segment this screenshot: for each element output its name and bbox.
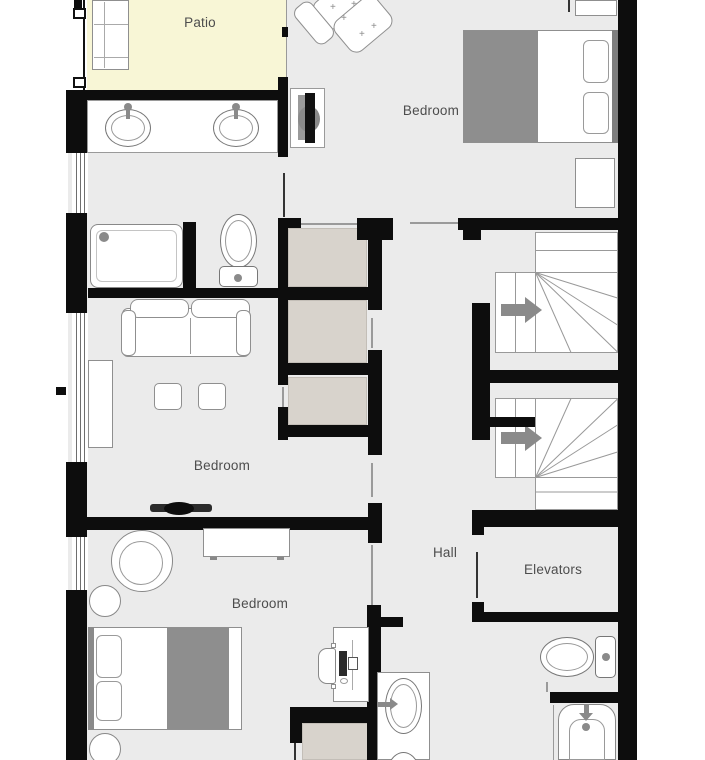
wall-stub: [463, 230, 481, 240]
pouf: [89, 733, 121, 760]
wall-below-elevators: [472, 612, 618, 622]
dresser-foot: [277, 557, 284, 560]
nightstand: [575, 158, 615, 208]
monitor: [339, 651, 347, 676]
chair-foot: [331, 684, 336, 689]
tuft-mark: +: [371, 22, 377, 32]
window-glass-line: [80, 313, 81, 462]
drain-dot: [582, 723, 590, 731]
door-line: [371, 463, 373, 497]
window-glass-line: [76, 153, 77, 213]
wall-segment: [66, 213, 87, 313]
shower-drain: [99, 232, 109, 242]
sofa-line: [94, 57, 128, 58]
bed-blanket: [464, 31, 538, 142]
closet-4-floor: [302, 723, 372, 760]
closet-divider-wall: [278, 363, 382, 375]
toilet-flush-dot: [602, 653, 610, 661]
sofa-armrest: [236, 310, 251, 356]
tuft-mark: +: [359, 30, 365, 40]
pillow: [96, 635, 122, 678]
desk-chair: [318, 648, 336, 684]
wall-stub: [568, 0, 570, 12]
stair-landing: [536, 233, 618, 273]
wall-segment: [66, 590, 87, 760]
wall-right-of-shower: [183, 222, 196, 290]
room-label-elevators: Elevators: [508, 562, 598, 577]
door-line: [294, 743, 296, 760]
tuft-mark: +: [330, 3, 336, 13]
stair-middle-wall: [483, 370, 637, 383]
closet-right-wall: [368, 350, 382, 455]
window: [72, 153, 88, 213]
closet-right-wall: [368, 503, 382, 543]
closet-2-floor: [288, 300, 367, 363]
window: [72, 537, 88, 590]
sofa-line: [94, 24, 128, 25]
door-line: [371, 318, 373, 348]
room-label-bedroom-top: Bedroom: [391, 103, 471, 118]
toilet-bowl-inner: [546, 643, 588, 671]
railing-post: [73, 77, 86, 88]
window-glass-line: [84, 313, 85, 462]
side-table: [198, 383, 226, 410]
sofa-armrest: [121, 310, 136, 356]
closet-wall: [278, 218, 288, 290]
window-glass-line: [80, 537, 81, 590]
pouf: [89, 585, 121, 617]
patio-door-stub: [282, 27, 288, 37]
chair-foot: [331, 643, 336, 648]
headboard: [612, 30, 618, 143]
faucet-icon: [390, 698, 398, 710]
window-glass-line: [84, 153, 85, 213]
faucet-icon: [584, 704, 589, 713]
tv-mount: [164, 502, 194, 515]
pillow: [96, 681, 122, 721]
up-arrow-icon: [501, 304, 525, 316]
railing-post: [73, 8, 86, 19]
closet-wall: [278, 375, 288, 385]
pillow: [583, 92, 609, 134]
door-line: [282, 387, 284, 407]
up-arrow-icon: [501, 432, 525, 444]
stair2-wall-stub: [483, 417, 535, 427]
room-label-bedroom-mid: Bedroom: [182, 458, 262, 473]
door-line: [371, 545, 373, 605]
door-line: [410, 222, 458, 224]
pillow: [583, 40, 609, 83]
desk-item-oval: [340, 678, 348, 684]
bed-blanket: [167, 628, 229, 729]
desk-item: [348, 657, 358, 670]
wall-right-of-vanity: [278, 77, 288, 157]
headboard: [88, 627, 94, 730]
hall-bottom-wall: [472, 510, 637, 527]
closet-right-wall: [368, 218, 382, 310]
wall-segment: [458, 218, 618, 230]
tuft-mark: +: [341, 14, 347, 24]
window-glass-line: [76, 537, 77, 590]
room-label-patio: Patio: [165, 15, 235, 30]
closet-divider-wall: [278, 287, 368, 300]
window: [72, 313, 88, 462]
closet4-top-wall: [290, 707, 372, 723]
faucet-icon: [579, 713, 593, 721]
closet-wall: [278, 300, 288, 368]
floor-plan: + + + + +: [0, 0, 705, 760]
wall-below-toilet-room: [550, 692, 618, 703]
staircase-upper: [483, 232, 618, 370]
closet-1-floor: [288, 228, 367, 287]
faucet-icon: [124, 103, 132, 111]
closet-3-floor: [288, 377, 367, 425]
door-line: [283, 173, 285, 217]
door-line: [546, 682, 548, 692]
dresser: [88, 360, 113, 448]
sofa-divider-line: [190, 318, 191, 354]
elevator-door-line: [476, 552, 478, 598]
window-glass-line: [76, 313, 77, 462]
wall-below-patio: [66, 90, 287, 100]
fireplace-bar: [305, 93, 315, 143]
stair-landing: [536, 478, 618, 510]
room-label-bedroom-bottom: Bedroom: [220, 596, 300, 611]
swivel-chair-inner: [119, 541, 163, 585]
side-table: [154, 383, 182, 410]
door-line: [553, 705, 554, 760]
sofa-back-cushion: [130, 299, 189, 318]
patio-sofa: [92, 0, 129, 70]
window-glass-line: [84, 537, 85, 590]
door-line: [301, 223, 357, 225]
toilet-bowl-inner: [225, 220, 252, 262]
railing-post-stub: [74, 0, 82, 8]
closet4-left-wall: [290, 707, 302, 743]
faucet-icon: [377, 702, 390, 707]
elevator-left-wall-stub: [472, 510, 484, 535]
toilet-flush-dot: [234, 274, 242, 282]
wall-stub-exterior: [56, 387, 66, 395]
closet-bottom-wall: [278, 425, 368, 437]
room-label-hall: Hall: [415, 545, 475, 560]
wall-below-bathroom: [88, 288, 278, 298]
dresser-foot: [210, 557, 217, 560]
window-glass-line: [80, 153, 81, 213]
wall-stub: [378, 617, 403, 627]
nightstand: [575, 0, 617, 16]
faucet-icon: [232, 103, 240, 111]
dresser: [203, 528, 290, 557]
tuft-mark: +: [351, 0, 357, 10]
sofa-line: [104, 2, 105, 68]
staircase-lower: [483, 383, 618, 510]
